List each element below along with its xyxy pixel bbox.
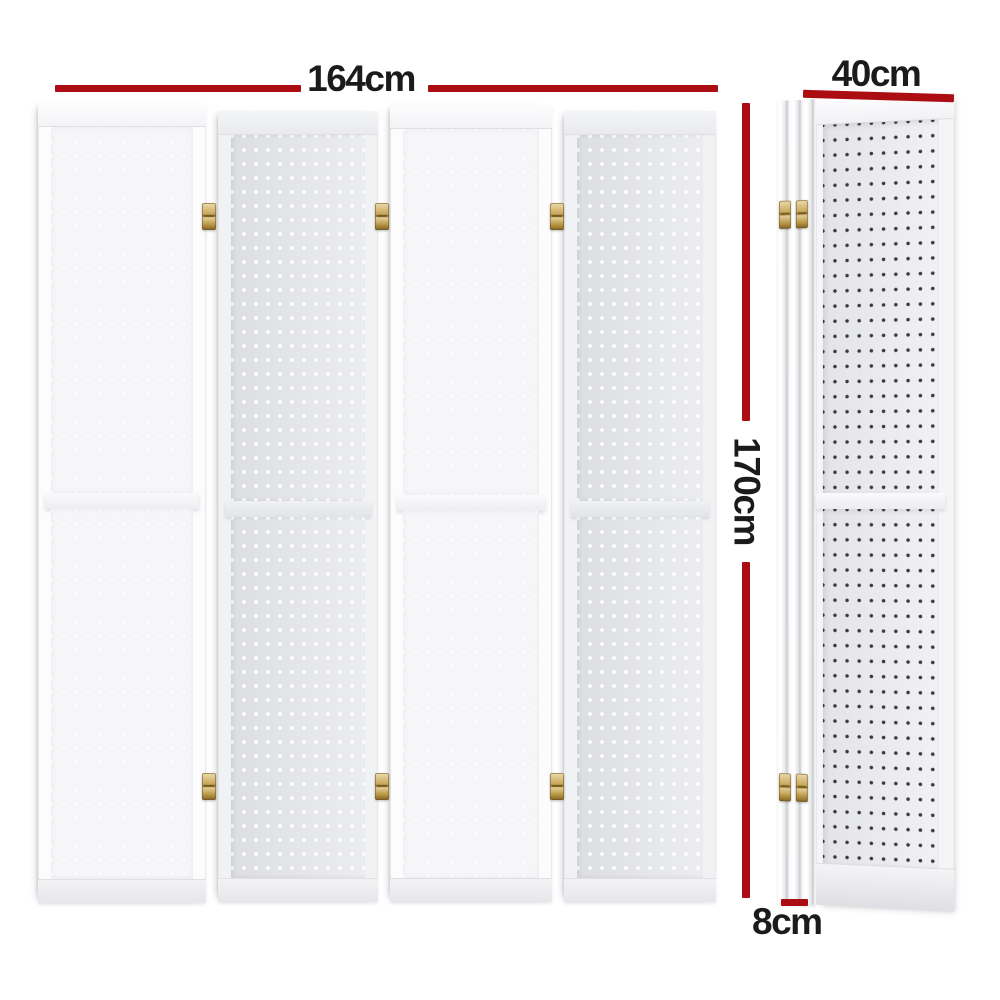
brass-hinge-icon	[202, 773, 216, 800]
side-pegboard-upper	[823, 120, 939, 493]
panel-top-rail	[390, 105, 552, 129]
front-panel-3	[390, 105, 552, 902]
panel-bottom-rail	[38, 879, 206, 903]
side-panel-middle-rail	[816, 493, 945, 509]
panel-middle-rail	[225, 501, 371, 517]
front-panel-2	[218, 111, 378, 902]
brass-hinge-icon	[796, 200, 808, 229]
panel-top-rail	[38, 103, 206, 127]
thickness-dimension-label: 8cm	[752, 903, 822, 940]
front-view	[38, 103, 720, 903]
height-dimension-label: 170cm	[729, 437, 766, 545]
pegboard-upper	[403, 129, 539, 495]
pegboard-lower	[403, 511, 539, 878]
width-dimension-line-left	[55, 85, 301, 92]
brass-hinge-icon	[375, 203, 389, 230]
pegboard-lower	[231, 517, 365, 878]
front-panel-4	[564, 111, 716, 902]
panel-top-rail	[564, 111, 716, 135]
depth-dimension-label: 40cm	[820, 55, 932, 92]
panel-bottom-rail	[218, 878, 378, 902]
height-dimension-line-bottom	[742, 562, 750, 898]
height-dimension-line-top	[742, 103, 750, 421]
brass-hinge-icon	[779, 201, 791, 229]
pegboard-upper	[51, 127, 193, 493]
side-panel	[816, 92, 955, 911]
brass-hinge-icon	[375, 773, 389, 800]
brass-hinge-icon	[550, 773, 564, 800]
panel-top-rail	[218, 111, 378, 135]
brass-hinge-icon	[202, 203, 216, 230]
side-pegboard-lower	[823, 509, 939, 868]
panel-middle-rail	[45, 493, 199, 509]
pegboard-lower	[51, 509, 193, 879]
side-panel-bottom-rail	[816, 863, 955, 912]
front-panel-1	[38, 103, 206, 903]
panel-bottom-rail	[390, 878, 552, 902]
panel-middle-rail	[397, 495, 545, 511]
width-dimension-line-right	[428, 85, 718, 92]
width-dimension-label: 164cm	[300, 60, 422, 97]
brass-hinge-icon	[779, 773, 791, 801]
side-hinge-cluster-top	[779, 200, 815, 229]
panel-bottom-rail	[564, 878, 716, 902]
brass-hinge-icon	[550, 203, 564, 230]
side-hinge-cluster-bottom	[779, 773, 815, 802]
pegboard-lower	[577, 517, 703, 878]
product-dimension-diagram: 164cm 40cm 170cm 8cm	[0, 0, 1000, 1000]
side-view	[778, 92, 954, 911]
brass-hinge-icon	[796, 774, 808, 803]
panel-middle-rail	[571, 501, 709, 517]
pegboard-upper	[231, 135, 365, 501]
pegboard-upper	[577, 135, 703, 501]
